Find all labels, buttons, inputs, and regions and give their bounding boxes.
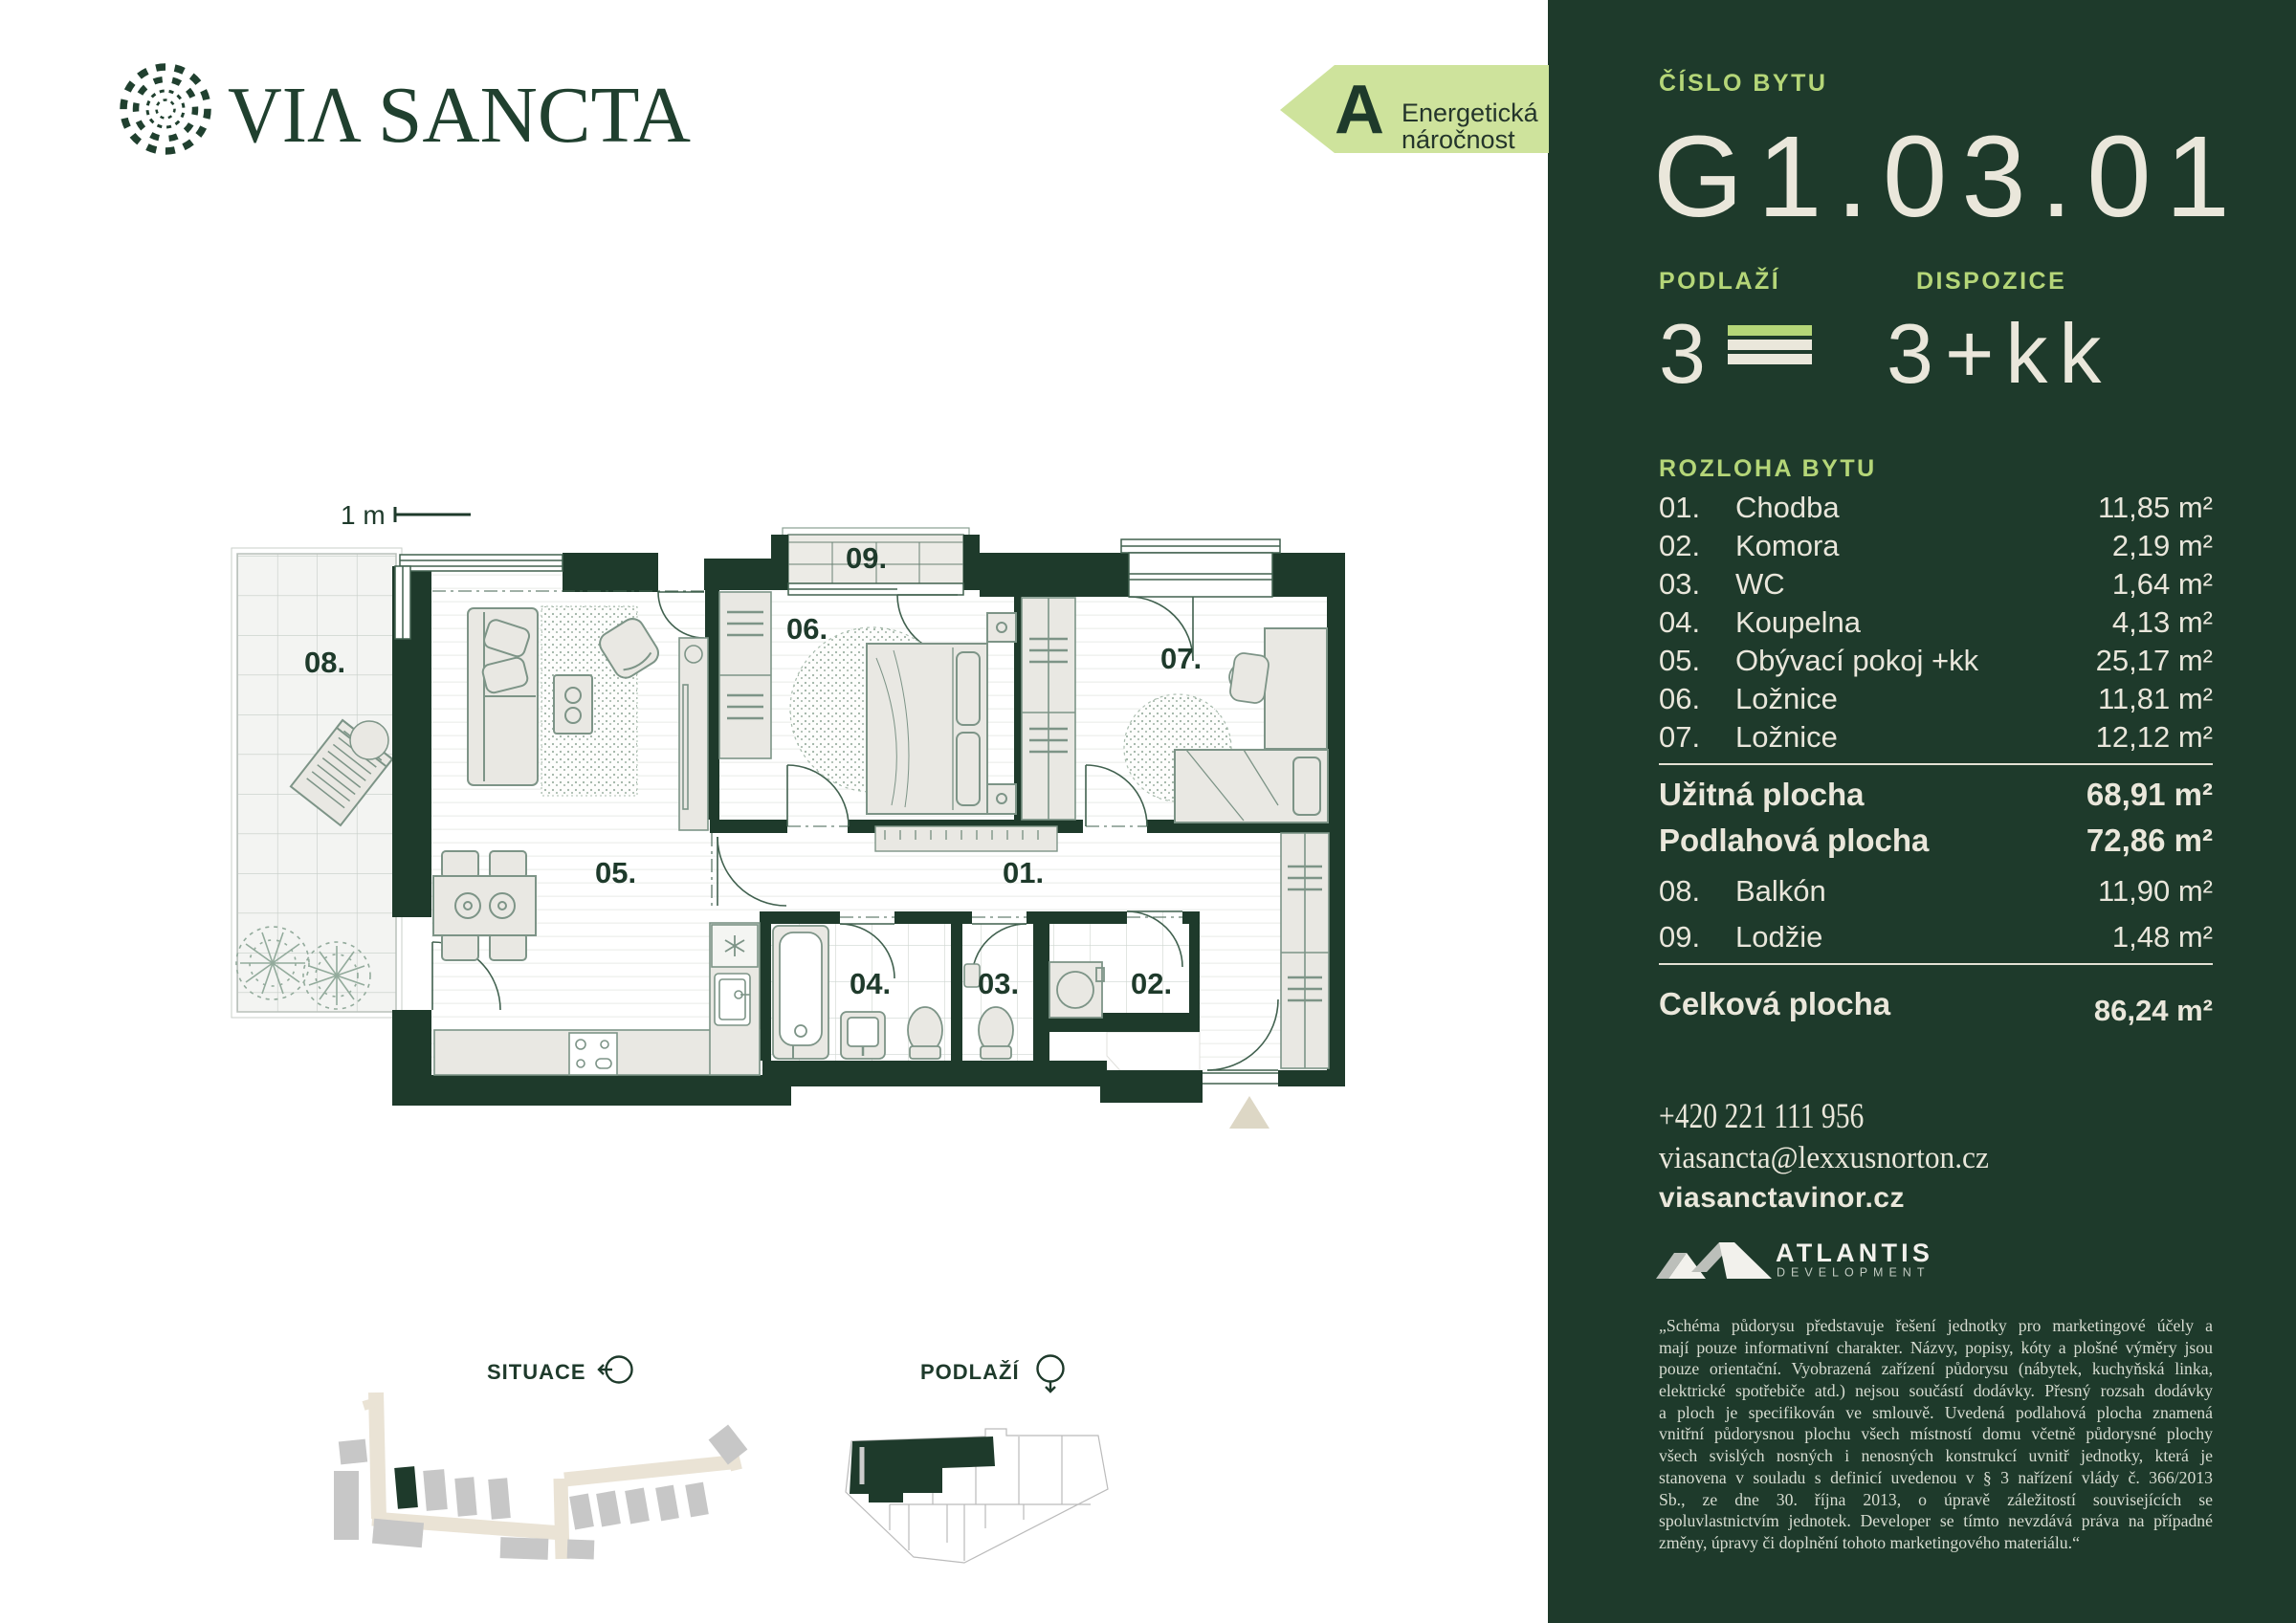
svg-text:04.: 04. (850, 967, 891, 1000)
svg-text:09.: 09. (846, 541, 887, 575)
svg-text:VIΛ: VIΛ (228, 71, 362, 160)
svg-text:1 m: 1 m (341, 500, 386, 530)
svg-text:08.: 08. (304, 646, 345, 679)
svg-text:07.: 07. (1160, 642, 1202, 675)
svg-text:01.: 01. (1003, 856, 1044, 889)
svg-text:05.: 05. (595, 856, 636, 889)
svg-text:06.: 06. (786, 612, 828, 646)
svg-text:SANCTA: SANCTA (378, 71, 691, 160)
svg-text:02.: 02. (1131, 967, 1172, 1000)
svg-text:PODLAŽÍ: PODLAŽÍ (920, 1360, 1020, 1384)
svg-text:SITUACE: SITUACE (487, 1360, 586, 1384)
svg-text:03.: 03. (978, 967, 1019, 1000)
